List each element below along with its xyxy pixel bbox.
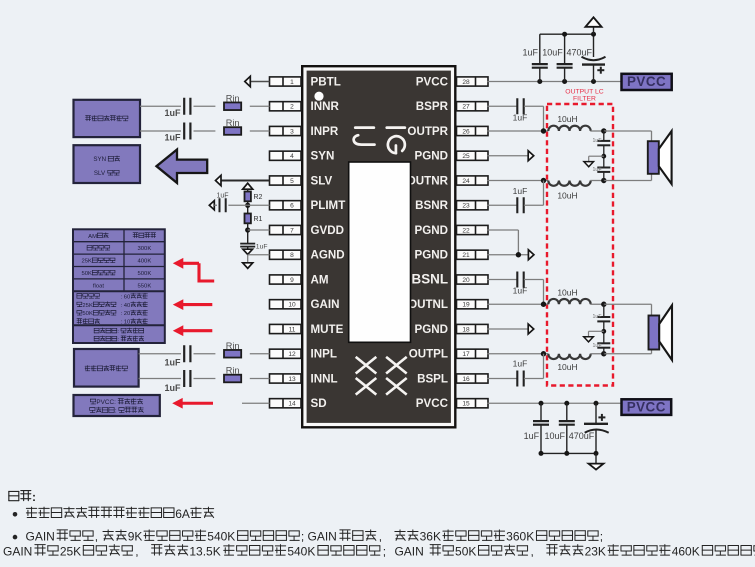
svg-text:11: 11 <box>289 326 296 333</box>
svg-text::: : <box>115 408 117 415</box>
svg-text:22: 22 <box>462 227 470 234</box>
svg-text:GAIN: GAIN <box>394 544 423 558</box>
svg-text:,: , <box>379 530 382 544</box>
svg-text:1uF: 1uF <box>165 133 182 143</box>
svg-text:5: 5 <box>290 178 294 185</box>
svg-text:SLV: SLV <box>94 170 106 177</box>
svg-text:;: ; <box>383 544 386 558</box>
svg-text:,: , <box>95 530 98 544</box>
svg-text:1: 1 <box>290 79 294 86</box>
svg-text:550K: 550K <box>138 283 152 289</box>
svg-text:PGND: PGND <box>415 150 449 163</box>
svg-text:BSNR: BSNR <box>415 199 448 212</box>
svg-text:28: 28 <box>462 79 470 86</box>
svg-text:500K: 500K <box>138 271 152 277</box>
svg-text:2: 2 <box>290 104 294 111</box>
svg-text:: 40: : 40 <box>121 303 132 309</box>
svg-text:GAIN: GAIN <box>311 298 340 311</box>
svg-text:SYN: SYN <box>93 156 106 163</box>
svg-text:17: 17 <box>462 351 470 358</box>
svg-text:PBTL: PBTL <box>311 75 341 88</box>
svg-text:26: 26 <box>462 128 470 135</box>
svg-text:12: 12 <box>288 351 296 358</box>
svg-text:10: 10 <box>288 302 296 309</box>
svg-text:15: 15 <box>462 401 470 408</box>
svg-text:460K: 460K <box>672 544 700 558</box>
svg-text:1uF: 1uF <box>593 138 602 144</box>
svg-text:;: ; <box>600 530 603 544</box>
svg-text:1uF: 1uF <box>165 358 182 368</box>
svg-text:PVCC: PVCC <box>627 399 666 414</box>
svg-text:19: 19 <box>462 302 470 309</box>
svg-text:AM: AM <box>88 234 97 240</box>
svg-text:50K: 50K <box>455 544 476 558</box>
svg-text:20: 20 <box>462 277 470 284</box>
svg-text:1uF: 1uF <box>524 431 540 441</box>
svg-text:AGND: AGND <box>311 249 345 262</box>
svg-text:,: , <box>135 544 138 558</box>
svg-text:Rin: Rin <box>226 118 240 128</box>
svg-text:1uF: 1uF <box>593 314 602 320</box>
svg-text:OUTNR: OUTNR <box>407 174 449 187</box>
svg-text:1uF: 1uF <box>165 383 182 393</box>
svg-text:BSPR: BSPR <box>416 100 449 113</box>
svg-text:1uF: 1uF <box>593 167 602 173</box>
svg-text:; GAIN: ; GAIN <box>301 530 337 544</box>
svg-text:PGND: PGND <box>415 249 449 262</box>
svg-text:PVCC:: PVCC: <box>96 399 116 406</box>
svg-text:GAIN: GAIN <box>3 544 32 558</box>
svg-text:400K: 400K <box>138 259 152 265</box>
svg-text:13.5K: 13.5K <box>189 544 220 558</box>
svg-text:24: 24 <box>462 178 470 185</box>
svg-text:25K: 25K <box>60 544 81 558</box>
svg-text:float: float <box>93 283 104 289</box>
svg-text:1uF: 1uF <box>165 108 182 118</box>
svg-text:: 20: : 20 <box>121 311 132 317</box>
svg-text:1uF: 1uF <box>513 186 528 196</box>
svg-text:25K: 25K <box>82 303 93 309</box>
svg-text:OUTPR: OUTPR <box>407 125 448 138</box>
svg-text:1uF: 1uF <box>593 343 602 349</box>
svg-text:10uF: 10uF <box>544 431 565 441</box>
svg-text:Rin: Rin <box>226 93 240 103</box>
svg-text:10uH: 10uH <box>557 362 577 372</box>
svg-text:8: 8 <box>290 252 294 259</box>
svg-text:36K: 36K <box>420 530 441 544</box>
svg-text:10uH: 10uH <box>557 114 577 124</box>
svg-text:23: 23 <box>462 203 470 210</box>
svg-text:1uF: 1uF <box>256 243 268 250</box>
svg-text:470uF: 470uF <box>569 431 595 441</box>
svg-text:PGND: PGND <box>415 323 449 336</box>
svg-text:SYN: SYN <box>311 150 335 163</box>
svg-text:6: 6 <box>290 203 294 210</box>
svg-text:INPL: INPL <box>311 348 337 361</box>
svg-text:Rin: Rin <box>226 341 240 351</box>
svg-text:,: , <box>530 544 533 558</box>
svg-text:10uF: 10uF <box>542 48 563 58</box>
svg-text:GAIN: GAIN <box>26 530 55 544</box>
svg-text:OUTPL: OUTPL <box>409 348 448 361</box>
svg-text:BSPL: BSPL <box>417 372 448 385</box>
svg-text:PVCC: PVCC <box>627 74 666 89</box>
svg-text:BSNL: BSNL <box>412 271 448 286</box>
svg-text:300K: 300K <box>138 246 152 252</box>
svg-text:OUTNL: OUTNL <box>408 298 448 311</box>
svg-text:INNR: INNR <box>311 100 340 113</box>
svg-text:SD: SD <box>311 397 327 410</box>
svg-text:470uF: 470uF <box>566 48 592 58</box>
svg-text:: 60: : 60 <box>121 294 132 300</box>
svg-text:540K: 540K <box>287 544 315 558</box>
svg-text:PLIMT: PLIMT <box>311 199 346 212</box>
svg-text:360K: 360K <box>506 530 534 544</box>
svg-text:1uF: 1uF <box>513 286 528 296</box>
svg-text:18: 18 <box>462 326 470 333</box>
svg-text:21: 21 <box>462 252 470 259</box>
svg-text:PVCC: PVCC <box>416 397 449 410</box>
svg-text:10uH: 10uH <box>557 287 577 297</box>
svg-text:INPR: INPR <box>311 125 339 138</box>
svg-text:1uF: 1uF <box>513 359 528 369</box>
svg-text:PVCC: PVCC <box>416 75 449 88</box>
svg-text:Rin: Rin <box>226 366 240 376</box>
svg-text:27: 27 <box>462 104 470 111</box>
svg-text:SLV: SLV <box>311 174 333 187</box>
svg-text::: : <box>32 490 36 504</box>
svg-text:INNL: INNL <box>311 372 338 385</box>
svg-text:R2: R2 <box>254 194 263 201</box>
svg-text:1uF: 1uF <box>513 112 528 122</box>
svg-text:50K: 50K <box>81 271 92 277</box>
svg-text:9K: 9K <box>128 530 143 544</box>
svg-text:: 10: : 10 <box>121 320 132 326</box>
svg-text:13: 13 <box>288 376 296 383</box>
svg-text:GVDD: GVDD <box>311 224 345 237</box>
svg-text:4: 4 <box>290 153 294 160</box>
svg-text:23K: 23K <box>585 544 606 558</box>
svg-text:1uF: 1uF <box>217 193 229 200</box>
svg-text:OUTPUT LC: OUTPUT LC <box>565 88 603 95</box>
svg-text:50K: 50K <box>82 311 93 317</box>
svg-text:7: 7 <box>290 227 294 234</box>
svg-text:FILTER: FILTER <box>573 96 596 103</box>
svg-text:14: 14 <box>288 401 296 408</box>
svg-text:R1: R1 <box>254 216 263 223</box>
svg-text:PGND: PGND <box>415 224 449 237</box>
svg-text:9: 9 <box>290 277 294 284</box>
svg-text:10uH: 10uH <box>557 190 577 200</box>
svg-text:25: 25 <box>462 153 470 160</box>
svg-text:6A: 6A <box>175 507 190 521</box>
svg-text:MUTE: MUTE <box>311 323 344 336</box>
svg-text:540K: 540K <box>207 530 235 544</box>
svg-text:16: 16 <box>462 376 470 383</box>
svg-text:AM: AM <box>311 273 329 286</box>
svg-text:25K: 25K <box>81 259 92 265</box>
svg-text:3: 3 <box>290 128 294 135</box>
svg-text:1uF: 1uF <box>522 48 538 58</box>
